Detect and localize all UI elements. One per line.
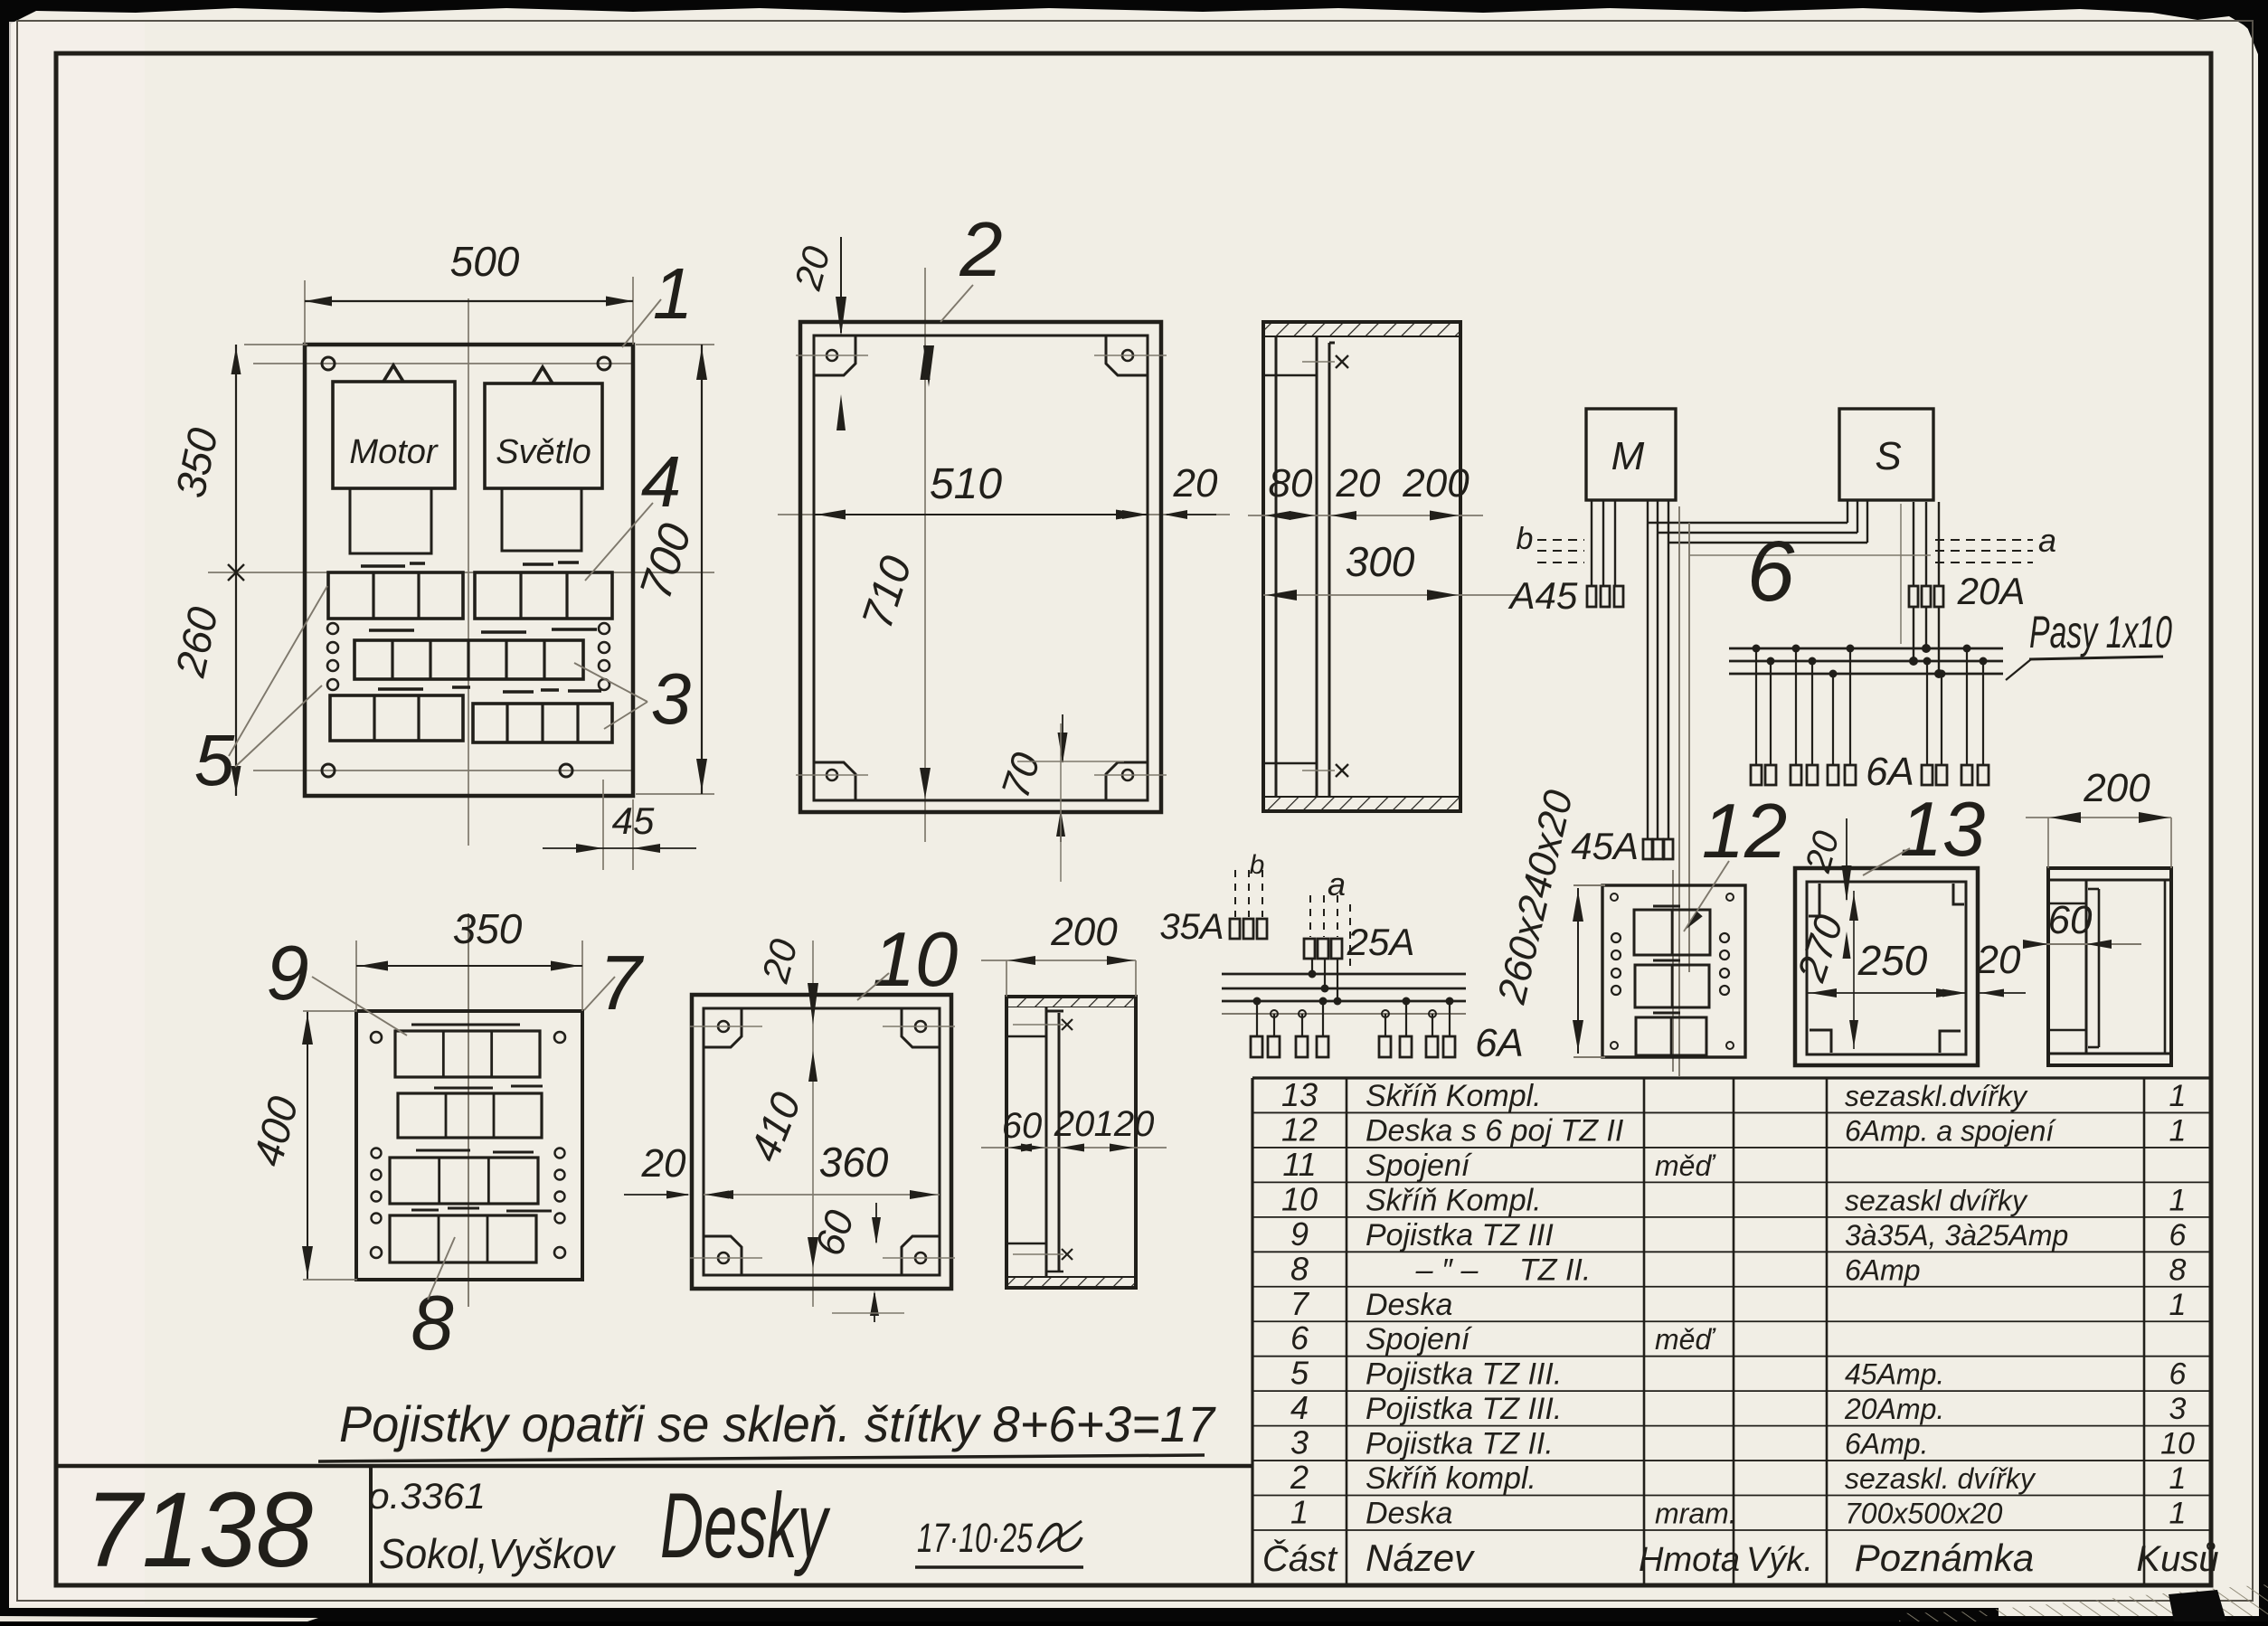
svg-text:– ″ –: – ″ – <box>1415 1253 1479 1287</box>
svg-text:80: 80 <box>1269 461 1313 506</box>
svg-text:20: 20 <box>641 1141 686 1186</box>
svg-text:Desky: Desky <box>660 1474 831 1577</box>
svg-text:Pojistky opatři se skleň. štít: Pojistky opatři se skleň. štítky 8+6+3=1… <box>339 1395 1216 1452</box>
svg-text:45Amp.: 45Amp. <box>1845 1358 1944 1391</box>
svg-text:12: 12 <box>1702 789 1788 874</box>
svg-text:60: 60 <box>1002 1106 1043 1146</box>
svg-text:měď: měď <box>1655 1323 1716 1356</box>
svg-text:1: 1 <box>2169 1497 2187 1531</box>
svg-text:1: 1 <box>1290 1494 1309 1531</box>
svg-text:2: 2 <box>1290 1459 1309 1496</box>
svg-text:1: 1 <box>2169 1079 2187 1113</box>
svg-text:6: 6 <box>1290 1319 1309 1357</box>
svg-text:200: 200 <box>1050 910 1118 954</box>
svg-text:200: 200 <box>1402 461 1469 506</box>
svg-text:250: 250 <box>1857 937 1928 984</box>
svg-text:TZ II.: TZ II. <box>1519 1253 1591 1287</box>
svg-text:20: 20 <box>1173 461 1218 506</box>
svg-text:Část: Část <box>1262 1538 1338 1579</box>
svg-text:6Amp.: 6Amp. <box>1845 1428 1928 1461</box>
svg-text:Sokol,Vyškov: Sokol,Vyškov <box>379 1530 617 1577</box>
svg-text:Deska: Deska <box>1366 1288 1452 1322</box>
svg-text:sezaskl dvířky: sezaskl dvířky <box>1845 1184 2028 1216</box>
svg-text:6A: 6A <box>1475 1021 1524 1065</box>
svg-text:Motor: Motor <box>349 433 438 471</box>
svg-text:13: 13 <box>1900 787 1986 873</box>
svg-text:20A: 20A <box>1957 570 2026 612</box>
svg-text:120: 120 <box>1094 1104 1155 1144</box>
svg-text:b: b <box>1250 850 1265 880</box>
svg-text:a: a <box>2038 522 2056 559</box>
svg-text:200: 200 <box>2083 766 2150 810</box>
svg-text:5: 5 <box>1290 1355 1309 1392</box>
svg-text:9: 9 <box>266 931 308 1016</box>
svg-text:6: 6 <box>2169 1218 2187 1253</box>
svg-text:Pojistka TZ II.: Pojistka TZ II. <box>1366 1427 1554 1461</box>
svg-text:6: 6 <box>2169 1357 2187 1392</box>
svg-text:13: 13 <box>1281 1076 1318 1113</box>
svg-text:45A: 45A <box>1571 825 1639 867</box>
svg-text:3: 3 <box>1290 1424 1309 1461</box>
svg-text:3à35A, 3à25Amp: 3à35A, 3à25Amp <box>1845 1219 2068 1252</box>
svg-text:Pojistka TZ III.: Pojistka TZ III. <box>1366 1357 1562 1392</box>
svg-text:60: 60 <box>2048 898 2093 942</box>
svg-text:17·10·25: 17·10·25 <box>917 1515 1034 1561</box>
svg-text:500: 500 <box>450 238 520 285</box>
svg-text:Pojistka TZ III.: Pojistka TZ III. <box>1366 1392 1562 1426</box>
svg-text:20: 20 <box>1054 1104 1095 1144</box>
svg-text:700x500x20: 700x500x20 <box>1845 1498 2003 1530</box>
svg-text:A45: A45 <box>1507 574 1578 617</box>
svg-text:6: 6 <box>1747 524 1795 619</box>
svg-text:11: 11 <box>1282 1146 1316 1183</box>
svg-text:45: 45 <box>612 799 655 842</box>
svg-text:Kusů: Kusů <box>2136 1539 2218 1579</box>
svg-text:Světlo: Světlo <box>496 433 591 471</box>
svg-text:510: 510 <box>930 460 1002 508</box>
svg-text:Hmota: Hmota <box>1639 1541 1740 1579</box>
svg-text:5: 5 <box>194 720 235 800</box>
svg-text:20: 20 <box>1336 461 1381 506</box>
svg-text:Výk.: Výk. <box>1746 1541 1813 1579</box>
svg-text:1: 1 <box>2169 1288 2187 1322</box>
svg-text:Pojistka TZ III: Pojistka TZ III <box>1366 1218 1554 1253</box>
svg-text:sezaskl.dvířky: sezaskl.dvířky <box>1845 1080 2028 1112</box>
svg-text:8: 8 <box>411 1281 453 1366</box>
svg-text:Název: Název <box>1366 1536 1476 1579</box>
svg-text:Skříň Kompl.: Skříň Kompl. <box>1366 1183 1542 1217</box>
svg-text:3: 3 <box>2169 1392 2187 1426</box>
svg-text:Deska: Deska <box>1366 1497 1452 1531</box>
svg-text:12: 12 <box>1281 1111 1318 1148</box>
svg-text:sezaskl. dvířky: sezaskl. dvířky <box>1845 1462 2036 1495</box>
svg-text:měď: měď <box>1655 1149 1716 1182</box>
svg-text:6Amp: 6Amp <box>1845 1253 1921 1286</box>
svg-text:M: M <box>1611 434 1645 478</box>
svg-text:9: 9 <box>1290 1215 1309 1253</box>
svg-text:7138: 7138 <box>85 1470 313 1590</box>
svg-text:10: 10 <box>2160 1427 2195 1461</box>
svg-text:Skříň kompl.: Skříň kompl. <box>1366 1461 1536 1496</box>
svg-text:1: 1 <box>2169 1461 2187 1496</box>
svg-text:2: 2 <box>959 207 1002 293</box>
svg-text:7: 7 <box>1290 1285 1310 1322</box>
svg-text:3: 3 <box>651 658 692 739</box>
svg-text:Spojení: Spojení <box>1366 1149 1473 1183</box>
svg-text:4: 4 <box>1290 1389 1309 1426</box>
svg-text:35A: 35A <box>1159 907 1224 947</box>
svg-text:b: b <box>1517 522 1534 556</box>
svg-text:25A: 25A <box>1347 921 1415 963</box>
svg-text:8: 8 <box>1290 1250 1309 1287</box>
svg-text:10: 10 <box>873 917 959 1003</box>
svg-text:Skříň Kompl.: Skříň Kompl. <box>1366 1079 1542 1113</box>
svg-text:mram.: mram. <box>1655 1498 1737 1530</box>
svg-text:Spojení: Spojení <box>1366 1322 1473 1357</box>
svg-text:Poznámka: Poznámka <box>1855 1536 2034 1579</box>
svg-text:20Amp.: 20Amp. <box>1844 1393 1944 1425</box>
svg-text:20: 20 <box>1976 938 2021 982</box>
svg-text:1: 1 <box>2169 1183 2187 1217</box>
svg-text:6Amp. a spojení: 6Amp. a spojení <box>1845 1114 2056 1147</box>
svg-text:S: S <box>1875 434 1901 478</box>
svg-text:300: 300 <box>1346 538 1415 585</box>
svg-text:Deska s 6 poj TZ II: Deska s 6 poj TZ II <box>1366 1113 1624 1148</box>
svg-text:360: 360 <box>819 1139 889 1186</box>
svg-text:350: 350 <box>453 905 523 952</box>
svg-text:10: 10 <box>1281 1180 1318 1217</box>
svg-text:o.3361: o.3361 <box>368 1477 486 1517</box>
svg-text:Pasy 1x10: Pasy 1x10 <box>2029 607 2172 657</box>
svg-text:1: 1 <box>653 253 694 334</box>
svg-text:7: 7 <box>599 941 644 1026</box>
svg-text:1: 1 <box>2169 1113 2187 1148</box>
svg-text:8: 8 <box>2169 1253 2187 1287</box>
